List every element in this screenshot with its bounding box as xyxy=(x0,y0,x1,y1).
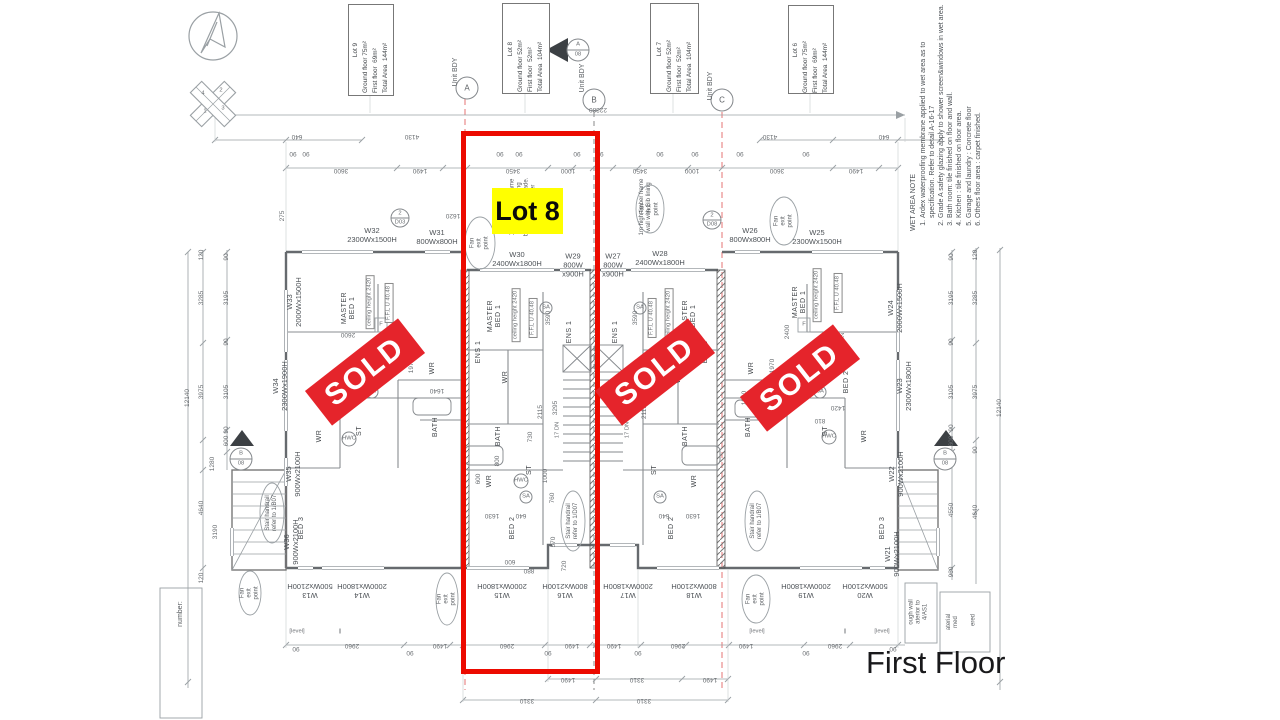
dim-label: 90 xyxy=(289,149,296,157)
room-label-wr: WR xyxy=(316,430,324,443)
key-quadrant-1: 1 xyxy=(203,109,206,116)
unit-bdy-label: Unit BDY xyxy=(707,72,715,101)
level-mark: [level] xyxy=(749,629,764,636)
level-mark: [level] xyxy=(874,629,889,636)
dim-label: 2960 xyxy=(671,641,685,649)
door-tag: D08 xyxy=(707,222,718,229)
window-label: W18 800Wx2100H xyxy=(671,581,716,599)
dim-label: 90 xyxy=(802,149,809,157)
dim-label: 2960 xyxy=(828,641,842,649)
dim-label: 90 xyxy=(292,644,299,652)
dim-label: 1490 xyxy=(703,675,717,683)
title-block-number-label: number: xyxy=(177,601,185,627)
dim-label: 3285 xyxy=(198,291,206,305)
dim-label: 1630 xyxy=(686,511,700,519)
dim-label: 640 xyxy=(292,132,303,140)
room-label-bath: BATH xyxy=(745,417,753,437)
dim-label: 120 xyxy=(198,250,206,261)
section-marker-number: 08 xyxy=(575,52,581,59)
dim-label: 90 xyxy=(634,648,641,656)
dim-label: 4640 xyxy=(198,501,206,515)
floor-level-note: F.F.L U 40.48 xyxy=(834,273,843,313)
dim-label: 22380 xyxy=(589,105,607,113)
unit-bdy-label: Unit BDY xyxy=(452,58,460,87)
dim-label: 1640 xyxy=(430,386,444,394)
section-marker-letter: B xyxy=(943,451,947,458)
wet-area-note-item: Garage and laundry : Concrete floor xyxy=(965,3,974,218)
dim-label: 3105 xyxy=(948,385,956,399)
dim-label: 90 xyxy=(406,648,413,656)
room-label-bed2: BED 2 xyxy=(668,517,676,540)
dim-label: 3195 xyxy=(948,291,956,305)
fan-exit-callout: Fan exit point xyxy=(436,592,457,605)
dim-label: 90 xyxy=(972,446,980,453)
dim-label: 1490 xyxy=(849,166,863,174)
window-label: W13 500Wx2100H xyxy=(287,581,332,599)
hwc-tag: HWC xyxy=(342,436,356,443)
room-label-st: ST xyxy=(651,465,659,475)
lot-name: Lot 9 xyxy=(351,7,361,93)
lot-first-area: First floor 69m² xyxy=(371,7,381,93)
wet-area-note-item: Grade A safety glazing apply to shower s… xyxy=(937,3,946,218)
hwc-tag: HWC xyxy=(822,434,836,441)
lot-key-icon xyxy=(190,81,235,126)
room-label-st: ST xyxy=(356,426,364,436)
stair-direction-label: 17 DN xyxy=(625,422,632,438)
dim-label: 2400 xyxy=(784,325,792,339)
lot-ground-area: Ground floor 75m² xyxy=(361,7,371,93)
dim-label: 4550 xyxy=(948,503,956,517)
lot-total-area: Total Area 144m² xyxy=(381,7,391,93)
lot-name: Lot 7 xyxy=(655,6,665,92)
room-label-ens: ENS 1 xyxy=(612,321,620,344)
dim-label: 1280 xyxy=(209,457,217,471)
dim-label: 4640 xyxy=(972,505,980,519)
stair-handrail-callout: Stair handrail refer to 1/B07 xyxy=(265,495,279,531)
window-label: W34 2300Wx1900H xyxy=(272,361,290,411)
window-label: W14 2000Wx1800H xyxy=(337,581,387,599)
room-label-bath: BATH xyxy=(682,426,690,446)
lot-first-area: First floor 52m² xyxy=(526,6,536,92)
floor-level-note: F.F.L U 40.48 xyxy=(385,283,394,323)
window-label: W31 800Wx800H xyxy=(416,229,457,247)
dim-label: 810 xyxy=(815,416,826,424)
floor-title: First Floor xyxy=(866,645,1006,681)
dim-label: 3975 xyxy=(198,385,206,399)
dim-label: 1490 xyxy=(433,641,447,649)
dim-label: 90 xyxy=(656,149,663,157)
window-label: W24 2000Wx1500H xyxy=(887,283,905,333)
dim-label: 1490 xyxy=(607,641,621,649)
lot-ground-area: Ground floor 52m² xyxy=(516,6,526,92)
room-label-bed3: BED 3 xyxy=(879,517,887,540)
lot-first-area: First floor 69m² xyxy=(811,7,821,93)
section-marker-number: 08 xyxy=(238,461,244,468)
dim-label: 120 xyxy=(972,250,980,261)
ceiling-height-note: ceiling height 2420 xyxy=(366,275,375,329)
lot-info-box-lot9: Lot 9Ground floor 75m²First floor 69m²To… xyxy=(348,4,394,96)
lot-total-area: Total Area 104m² xyxy=(536,6,546,92)
stair-handrail-callout: Stair handrail refer to 1/B07 xyxy=(750,503,764,539)
level-mark: || xyxy=(338,629,341,636)
fridge-tag: F xyxy=(379,322,383,329)
window-label: W23 2300Wx1800H xyxy=(896,361,914,411)
fridge-tag: F xyxy=(802,322,806,329)
room-label-bath: BATH xyxy=(432,417,440,437)
dim-label: 90 xyxy=(691,149,698,157)
lot-total-area: Total Area 104m² xyxy=(685,6,695,92)
dim-label: 1490 xyxy=(739,641,753,649)
lot-ground-area: Ground floor 52m² xyxy=(665,6,675,92)
key-quadrant-4: 4 xyxy=(201,91,204,98)
dim-label: 90 xyxy=(302,149,309,157)
dim-label: 1490 xyxy=(413,166,427,174)
spec-note-fragment: ered xyxy=(970,614,977,626)
spec-note-fragment: aterial med xyxy=(946,614,960,630)
dim-label: 120 xyxy=(198,573,206,584)
dim-label: 600 xyxy=(948,436,956,447)
lot8-highlight-label: Lot 8 xyxy=(492,188,563,234)
dim-label: 90 xyxy=(948,338,956,345)
dim-label: 640 xyxy=(879,132,890,140)
grid-marker-b: B xyxy=(591,95,596,104)
level-mark: || xyxy=(843,629,846,636)
room-label-wr: WR xyxy=(748,362,756,375)
dim-label: 90 xyxy=(223,338,231,345)
dim-label: 90 xyxy=(948,424,956,431)
window-label: W20 500Wx2100H xyxy=(842,581,887,599)
spec-note-fragment: ough wall aterior to 4/AS1 xyxy=(908,599,929,624)
dim-label: 1620 xyxy=(446,211,460,219)
wet-area-note-title: WET AREA NOTE xyxy=(909,3,918,231)
wet-area-note-item: Others floor area : carpet finished. xyxy=(974,3,983,218)
dim-label: 4130 xyxy=(405,132,419,140)
lot-name: Lot 6 xyxy=(791,7,801,93)
dim-label: 2600 xyxy=(341,330,355,338)
window-label: W27 800W x900H xyxy=(602,253,624,280)
window-label: W25 2300Wx1500H xyxy=(792,229,842,247)
window-label: W33 2000Wx1500H xyxy=(286,277,304,327)
dim-label: 3195 xyxy=(223,291,231,305)
room-label-wr: WR xyxy=(429,362,437,375)
key-quadrant-2: 2 xyxy=(219,88,222,95)
window-label: W28 2400Wx1800H xyxy=(635,250,685,268)
section-marker-letter: A xyxy=(576,42,580,49)
dim-label: 90 xyxy=(736,149,743,157)
dim-label: 90 xyxy=(223,426,231,433)
room-label-master-bed: MASTER BED 1 xyxy=(792,286,809,318)
dim-label: 90 xyxy=(802,648,809,656)
lot-first-area: First floor 52m² xyxy=(675,6,685,92)
dim-label: 3285 xyxy=(972,291,980,305)
dim-label: 600 xyxy=(223,436,231,447)
sa-tag: SA xyxy=(636,305,644,312)
lot-total-area: Total Area 144m² xyxy=(821,7,831,93)
section-marker-number: 08 xyxy=(942,461,948,468)
lot-ground-area: Ground floor 75m² xyxy=(801,7,811,93)
section-marker-letter: B xyxy=(239,451,243,458)
timber-wall-note: 1m high timber frame wall with Gib linin… xyxy=(639,179,653,236)
lot-info-box-lot7: Lot 7Ground floor 52m²First floor 52m²To… xyxy=(650,3,699,94)
lot-name: Lot 8 xyxy=(506,6,516,92)
dim-label: 3190 xyxy=(212,525,220,539)
dim-label: 90 xyxy=(948,253,956,260)
key-quadrant-3: 3 xyxy=(221,106,224,113)
wet-area-note-item: Bath room: tile finished on floor and wa… xyxy=(946,3,955,218)
door-tag: 2 xyxy=(710,213,713,220)
dim-label: 3310 xyxy=(520,696,534,704)
dim-label: 3310 xyxy=(637,696,651,704)
dim-label: 3105 xyxy=(223,385,231,399)
dim-label: 3310 xyxy=(630,675,644,683)
fan-exit-callout: Fan exit point xyxy=(745,592,766,605)
dim-label: 1420 xyxy=(831,403,845,411)
wet-area-note: WET AREA NOTE Ardex waterproofing membra… xyxy=(909,3,1015,231)
unit-bdy-label: Unit BDY xyxy=(579,64,587,93)
fan-exit-callout: Fan exit point xyxy=(239,586,260,599)
dim-label: 90 xyxy=(223,253,231,260)
dim-label: 3590 xyxy=(632,311,640,325)
wet-area-note-item: Kitchen : tile finished on floor area. xyxy=(955,3,964,218)
lot-info-box-lot6: Lot 6Ground floor 75m²First floor 69m²To… xyxy=(788,5,834,94)
dim-label: 3975 xyxy=(972,385,980,399)
dim-label: 1490 xyxy=(561,675,575,683)
window-label: W32 2300Wx1500H xyxy=(347,227,397,245)
room-label-bed3: BED 3 xyxy=(298,517,306,540)
wet-area-note-item: Ardex waterproofing membrane applied to … xyxy=(919,3,937,218)
door-tag: D03 xyxy=(395,220,406,227)
grid-marker-a: A xyxy=(464,83,469,92)
grid-marker-c: C xyxy=(719,95,725,104)
lot-info-box-lot8: Lot 8Ground floor 52m²First floor 52m²To… xyxy=(502,3,550,94)
level-mark: [level] xyxy=(289,629,304,636)
room-label-master-bed: MASTER BED 1 xyxy=(341,292,358,324)
window-label: W17 2000Wx1800H xyxy=(603,581,653,599)
ceiling-height-note: ceiling height 2420 xyxy=(813,268,822,322)
dim-label: 4130 xyxy=(763,132,777,140)
dim-label: 2960 xyxy=(345,641,359,649)
window-label: W26 800Wx800H xyxy=(729,227,770,245)
north-compass-icon xyxy=(189,12,237,60)
room-label-wr: WR xyxy=(691,475,699,488)
room-label-wr: WR xyxy=(861,430,869,443)
dim-label: 12140 xyxy=(996,399,1004,417)
fan-exit-callout: Fan exit point xyxy=(773,214,794,227)
room-label-bed2: BED 2 xyxy=(843,371,851,394)
window-label: W19 2000Wx1800H xyxy=(781,581,831,599)
dim-label: 3600 xyxy=(770,166,784,174)
door-tag: 2 xyxy=(398,211,401,218)
window-label: W35 900Wx2100H xyxy=(285,451,303,496)
dim-label: 960 xyxy=(948,567,956,578)
dim-label: 275 xyxy=(279,211,287,222)
dim-label: 12140 xyxy=(184,389,192,407)
window-label: W22 900Wx2100H xyxy=(888,451,906,496)
sa-tag: SA xyxy=(656,494,664,501)
floor-plan-canvas: Unit BDY Unit BDY Unit BDY A B C A 08 B … xyxy=(0,0,1280,720)
floor-level-note: F.F.L U 40.48 xyxy=(648,298,657,338)
dim-label: 3450 xyxy=(633,166,647,174)
dim-label: 3600 xyxy=(334,166,348,174)
dim-label: 1000 xyxy=(685,166,699,174)
